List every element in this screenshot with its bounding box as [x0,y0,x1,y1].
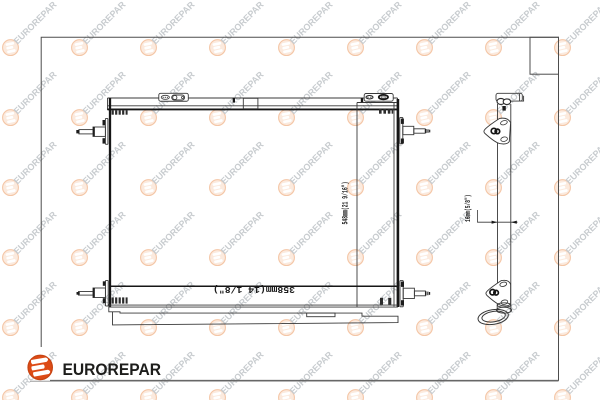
svg-text:16mm(5/8"): 16mm(5/8") [465,195,473,223]
svg-text:EUROREPAR: EUROREPAR [63,360,162,379]
svg-text:548mm(21 9/16"): 548mm(21 9/16") [341,182,351,225]
svg-text:358mm(14 1/8"): 358mm(14 1/8") [213,284,295,295]
